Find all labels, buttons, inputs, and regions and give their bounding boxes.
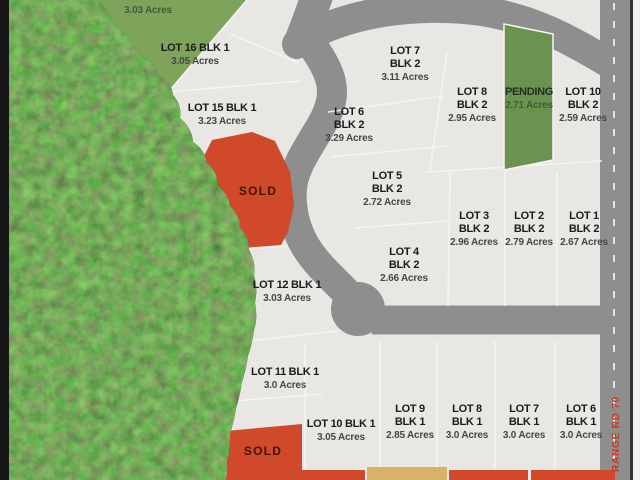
lot-acres: 3.0 Acres [251, 380, 319, 392]
lot-label-lot6-blk2: LOT 6 BLK 2 3.29 Acres [325, 106, 373, 145]
lot-block: BLK 2 [560, 223, 608, 236]
lot-block: BLK 1 [503, 416, 545, 429]
lot-name: LOT 5 [363, 170, 411, 183]
lot-label-pending-top: PENDING 3.03 Acres [124, 0, 172, 17]
lot-name: LOT 1 [560, 210, 608, 223]
lot-name: LOT 2 [505, 210, 553, 223]
lot-block: BLK 1 [446, 416, 488, 429]
lot-label-lot5-blk2: LOT 5 BLK 2 2.72 Acres [363, 170, 411, 209]
lot-map: PENDING 3.03 Acres LOT 16 BLK 1 3.05 Acr… [0, 0, 640, 480]
lot-acres: 3.23 Acres [188, 116, 257, 128]
lot-acres: 2.72 Acres [363, 197, 411, 209]
lot-block: BLK 2 [448, 99, 496, 112]
lot-label-lot7-blk1: LOT 7 BLK 1 3.0 Acres [503, 403, 545, 442]
lot-acres: 3.05 Acres [307, 432, 376, 444]
lot-label-sold-bottom: SOLD [244, 445, 282, 458]
lot-block: BLK 1 [560, 416, 602, 429]
lot-block: BLK 2 [450, 223, 498, 236]
lot-label-lot16-blk1: LOT 16 BLK 1 3.05 Acres [161, 42, 230, 68]
lot-name: LOT 11 BLK 1 [251, 366, 319, 379]
lot-block: BLK 2 [559, 99, 607, 112]
lot-name: LOT 6 [560, 403, 602, 416]
lot-name: LOT 6 [325, 106, 373, 119]
lot-block: BLK 2 [380, 259, 428, 272]
lot-acres: 3.03 Acres [253, 293, 322, 305]
lot-acres: 3.0 Acres [503, 430, 545, 442]
lot-label-lot8-blk1: LOT 8 BLK 1 3.0 Acres [446, 403, 488, 442]
lot-block: BLK 2 [363, 183, 411, 196]
lot-acres: 2.59 Acres [559, 113, 607, 125]
lot-name: LOT 10 BLK 1 [307, 418, 376, 431]
lot-label-lot9-blk1: LOT 9 BLK 1 2.85 Acres [386, 403, 434, 442]
lot-name: LOT 9 [386, 403, 434, 416]
lot-name: LOT 8 [448, 86, 496, 99]
lot-label-lot2-blk2: LOT 2 BLK 2 2.79 Acres [505, 210, 553, 249]
lot-status: SOLD [239, 185, 277, 198]
lot-label-lot10-blk1: LOT 10 BLK 1 3.05 Acres [307, 418, 376, 444]
lot-acres: 3.0 Acres [560, 430, 602, 442]
lot-status: SOLD [244, 445, 282, 458]
lot-label-lot11-blk1: LOT 11 BLK 1 3.0 Acres [251, 366, 319, 392]
lot-acres: 2.79 Acres [505, 237, 553, 249]
lot-acres: 3.05 Acres [161, 56, 230, 68]
lot-acres: 3.11 Acres [381, 72, 428, 84]
lot-name: LOT 15 BLK 1 [188, 102, 257, 115]
lot-label-lot12-blk1: LOT 12 BLK 1 3.03 Acres [253, 279, 322, 305]
lot-name: LOT 7 [503, 403, 545, 416]
lot-block: BLK 1 [386, 416, 434, 429]
lot-name: LOT 7 [381, 45, 428, 58]
lot-label-lot7-blk2: LOT 7 BLK 2 3.11 Acres [381, 45, 428, 84]
lot-acres: 2.95 Acres [448, 113, 496, 125]
lot-label-lot4-blk2: LOT 4 BLK 2 2.66 Acres [380, 246, 428, 285]
lot-name: LOT 8 [446, 403, 488, 416]
lot-acres: 3.03 Acres [124, 5, 172, 17]
lot-labels: PENDING 3.03 Acres LOT 16 BLK 1 3.05 Acr… [0, 0, 640, 480]
lot-label-pending-strip: PENDING 2.71 Acres [505, 86, 553, 112]
lot-block: BLK 2 [381, 58, 428, 71]
lot-label-lot3-blk2: LOT 3 BLK 2 2.96 Acres [450, 210, 498, 249]
lot-status: PENDING [505, 86, 553, 99]
lot-name: LOT 4 [380, 246, 428, 259]
lot-acres: 2.67 Acres [560, 237, 608, 249]
lot-label-lot8-blk2: LOT 8 BLK 2 2.95 Acres [448, 86, 496, 125]
lot-acres: 3.29 Acres [325, 133, 373, 145]
lot-name: LOT 3 [450, 210, 498, 223]
lot-name: LOT 10 [559, 86, 607, 99]
lot-acres: 2.85 Acres [386, 430, 434, 442]
lot-acres: 3.0 Acres [446, 430, 488, 442]
lot-label-lot15-blk1: LOT 15 BLK 1 3.23 Acres [188, 102, 257, 128]
range-rd-70-label: RANGE RD 70 [611, 396, 622, 472]
lot-block: BLK 2 [505, 223, 553, 236]
lot-acres: 2.96 Acres [450, 237, 498, 249]
lot-acres: 2.71 Acres [505, 100, 553, 112]
lot-label-lot6-blk1: LOT 6 BLK 1 3.0 Acres [560, 403, 602, 442]
lot-acres: 2.66 Acres [380, 273, 428, 285]
lot-block: BLK 2 [325, 119, 373, 132]
lot-label-lot1-blk2: LOT 1 BLK 2 2.67 Acres [560, 210, 608, 249]
lot-label-lot10-blk2: LOT 10 BLK 2 2.59 Acres [559, 86, 607, 125]
lot-status: PENDING [124, 0, 172, 4]
lot-name: LOT 12 BLK 1 [253, 279, 322, 292]
lot-label-sold-mid: SOLD [239, 185, 277, 198]
lot-name: LOT 16 BLK 1 [161, 42, 230, 55]
